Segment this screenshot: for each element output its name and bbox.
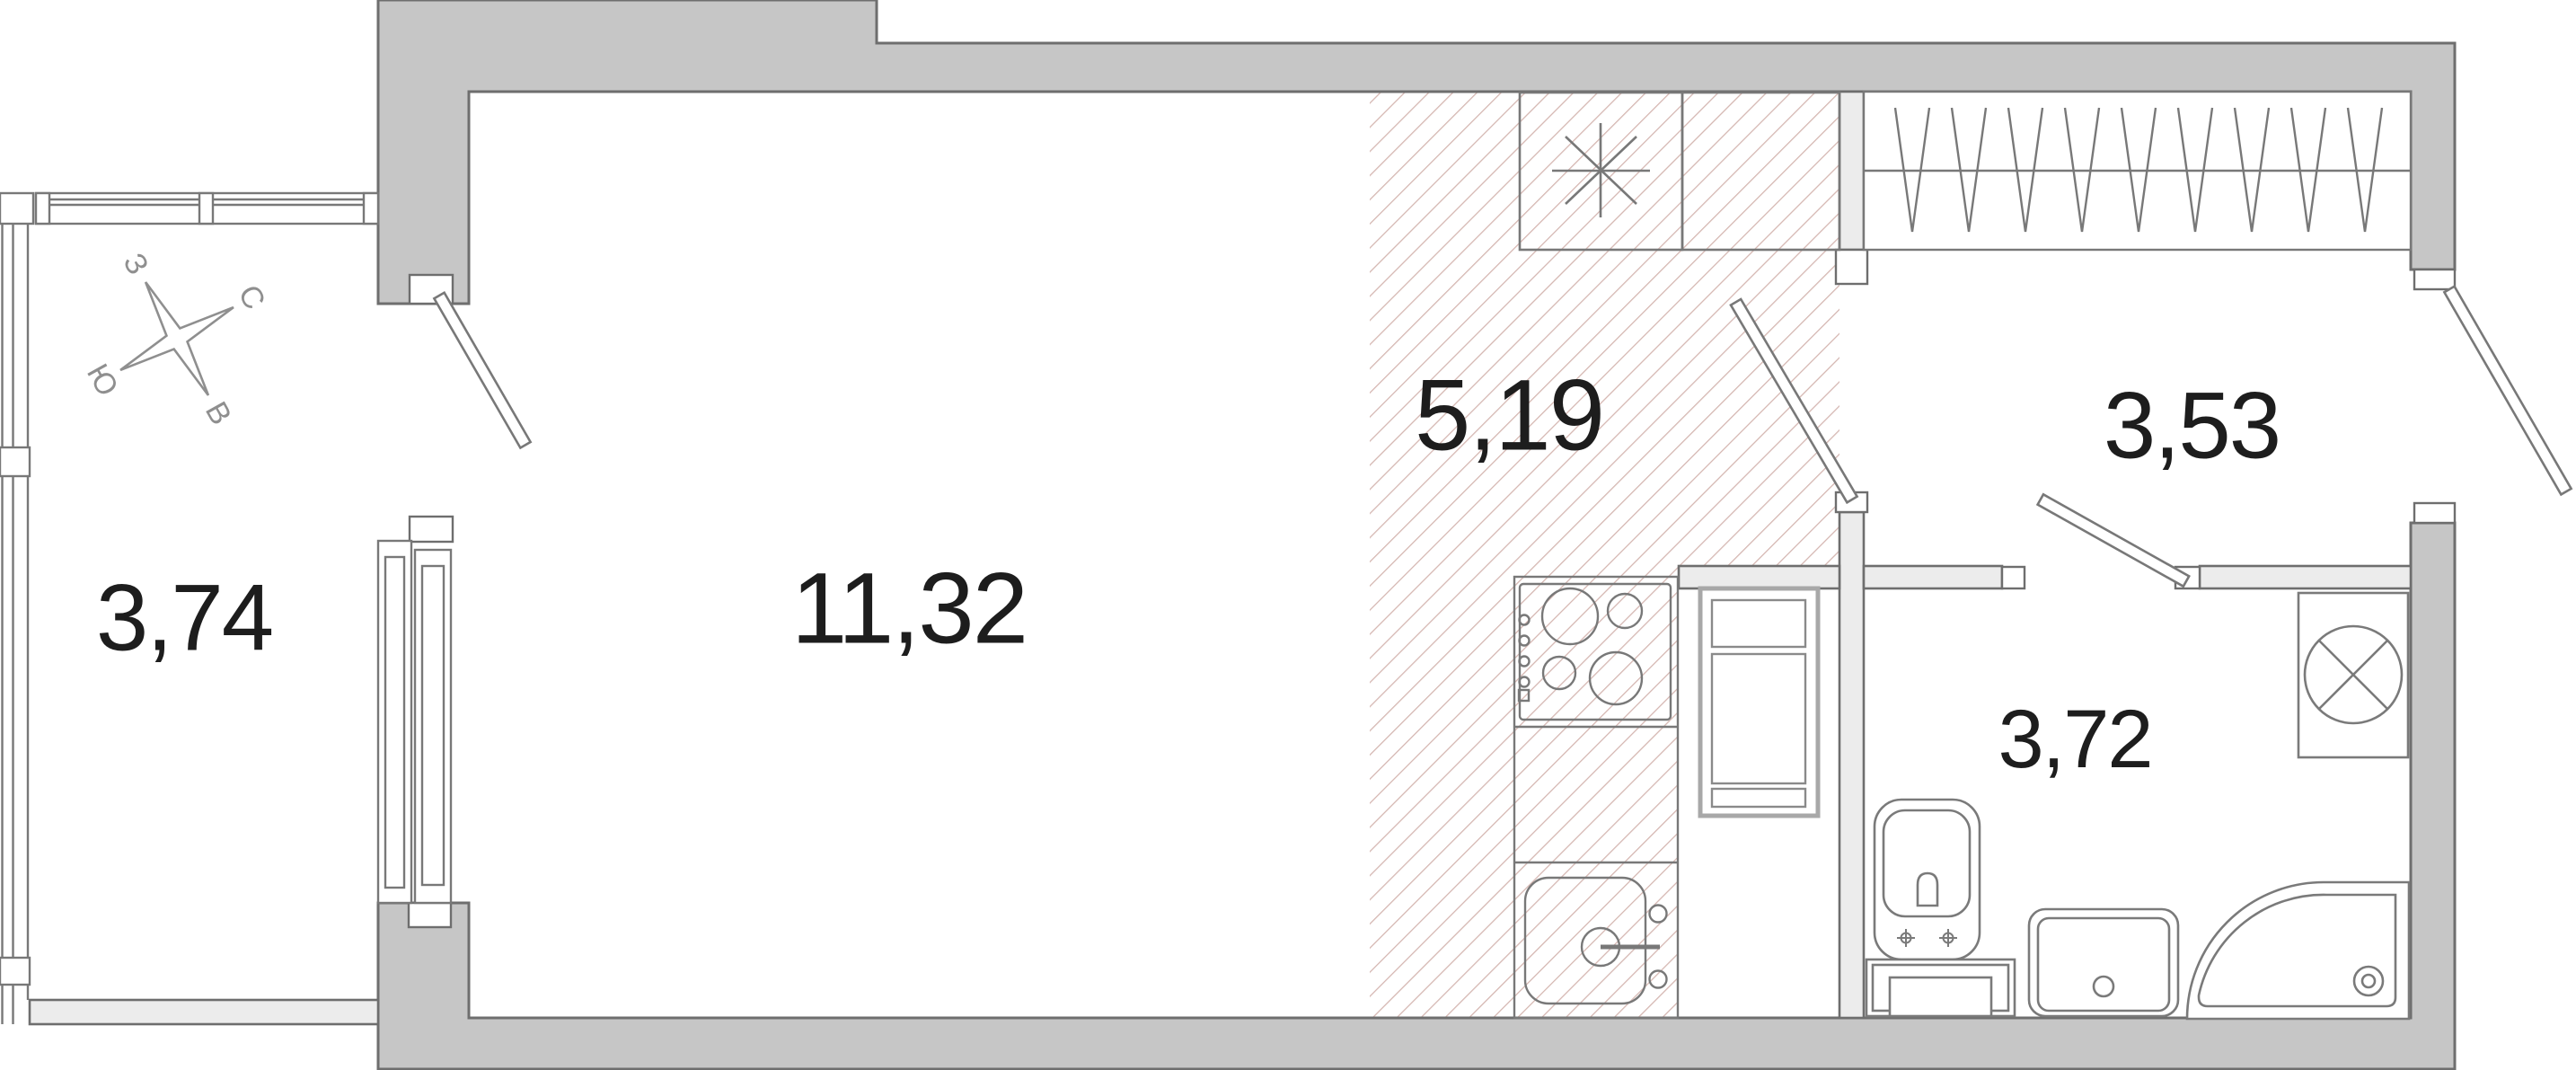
floor-plan: С В Ю З 11,32 5,19 3,53 3,72 3,74 [0,0,2576,1070]
compass-star [89,251,265,427]
label-living-room-area: 11,32 [791,553,1027,665]
bath-sink-icon [2029,909,2178,1016]
shower-drain-inner [2362,975,2375,987]
balcony-band-divider-left [36,193,49,224]
shower-icon [2187,882,2409,1019]
window-column-b-glass [422,566,444,885]
jamb-window-top [410,517,453,542]
compass-letter-south: Ю [80,358,125,402]
toilet-cistern-inner [1890,977,1991,1016]
left-wall-window-unit [378,541,451,903]
bath-sink-drain [2094,977,2113,996]
kitchen-hatch-area [1370,92,1839,1018]
jamb-entry-latch [2414,503,2455,523]
toilet-icon [1866,800,2015,1016]
shower-tray-outer [2187,882,2409,1019]
compass-icon: С В Ю З [41,207,313,473]
balcony-glazing-joint-lower [0,958,30,985]
partition-bathroom-north-west [1864,566,2002,588]
balcony-glazing-joint-upper [0,447,30,476]
partition-bathroom-north-east [2200,566,2411,588]
compass-letter-west: З [116,248,154,280]
label-balcony-area: 3,74 [96,566,272,671]
jamb-kitchen-top [1836,250,1867,284]
kitchen-floor-hatch [1370,92,1839,1018]
label-bathroom-area: 3,72 [1998,694,2151,785]
balcony-band-end-block [364,193,378,224]
partition-kitchen-bathroom [1839,512,1864,1018]
flue-asterisk-icon [1552,123,1650,217]
balcony-band-divider-mid [199,193,213,224]
toilet-flush [1918,873,1937,906]
balcony-bottom-sill [30,1000,378,1024]
refrigerator-icon [1700,588,1818,816]
bathroom-door-leaf [2038,494,2190,586]
jamb-entry-hinge [2414,270,2455,289]
compass-letter-north: С [232,279,272,315]
label-kitchen-area: 5,19 [1415,359,1603,472]
window-column-a-glass [385,557,404,888]
partition-kitchen-hallway [1839,92,1864,250]
wardrobe [1864,92,2411,250]
label-hallway-area: 3,53 [2104,374,2280,479]
partition-niche-lintel [1679,566,1839,588]
bathroom-fixtures [1866,593,2409,1019]
floor-plan-page: С В Ю З 11,32 5,19 3,53 3,72 3,74 [0,0,2576,1070]
balcony-door-leaf [434,293,530,448]
jamb-bath-latch [2002,567,2025,588]
jamb-window-bottom [409,903,451,927]
compass-letter-east: В [198,396,238,430]
washing-machine-icon [2298,593,2408,757]
balcony-corner-block [0,193,33,224]
entry-door-leaf [2444,287,2571,495]
